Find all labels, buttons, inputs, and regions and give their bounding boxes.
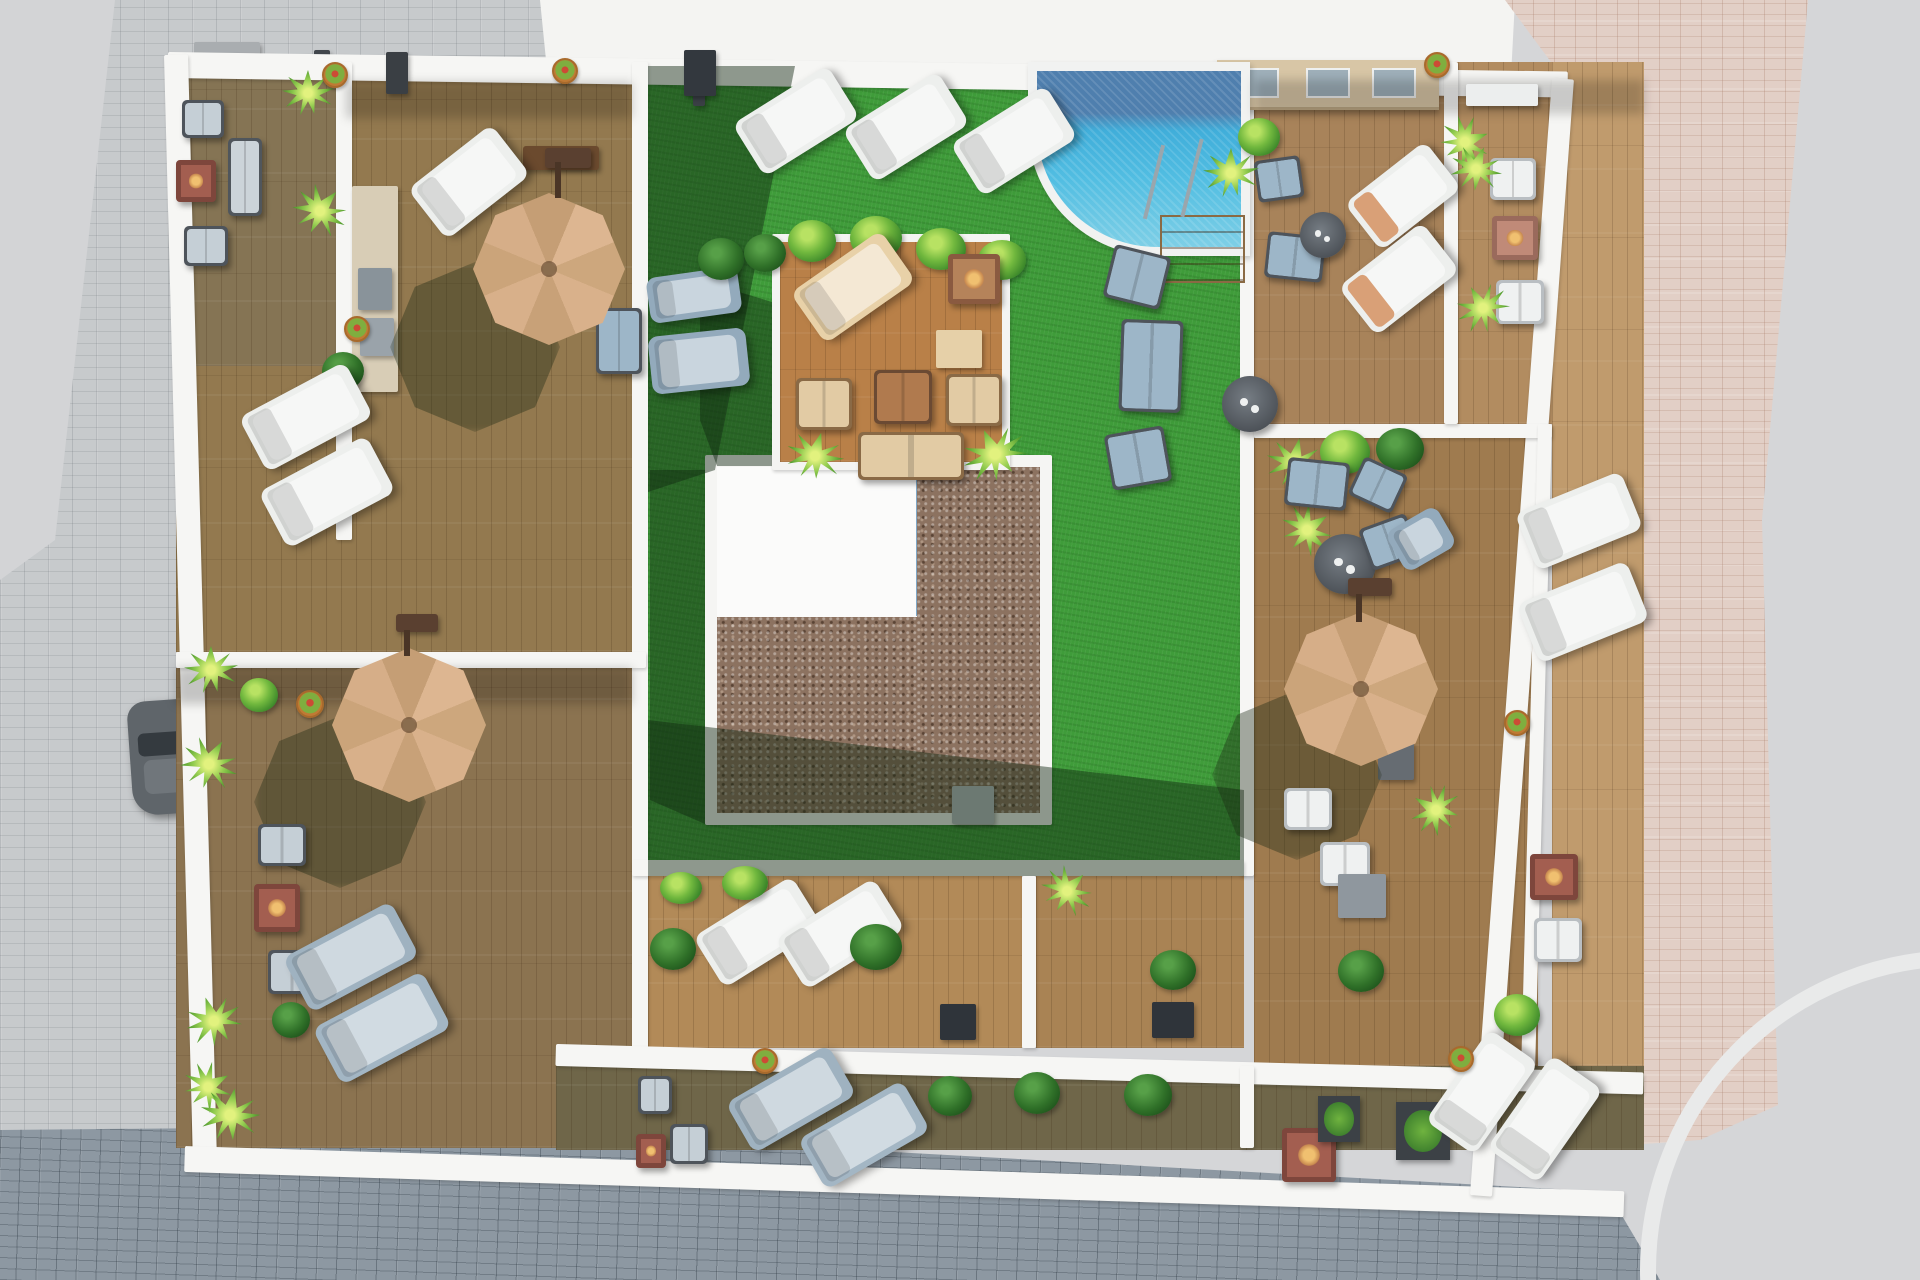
umbrella-arm — [555, 162, 561, 198]
rooftop-courtyard-render — [0, 0, 1920, 1280]
bush — [1014, 1072, 1060, 1114]
bush — [744, 234, 786, 272]
bush — [272, 1002, 310, 1038]
sofa — [228, 138, 262, 216]
counter-white — [1466, 84, 1538, 106]
flower-pot — [1504, 710, 1530, 736]
bush — [1238, 118, 1280, 156]
bush — [788, 220, 836, 262]
flower-pot — [1424, 52, 1450, 78]
fire-table — [1492, 216, 1538, 260]
umbrella-nw — [473, 193, 625, 345]
lounger-blue — [647, 327, 751, 395]
fire-table — [254, 884, 300, 932]
bush — [928, 1076, 972, 1116]
fire-table — [636, 1134, 666, 1168]
umbrella-base — [396, 614, 438, 632]
flower-pot — [322, 62, 348, 88]
storage-box — [1338, 874, 1386, 918]
shadow-wall-ne — [1254, 80, 1644, 114]
armchair-white — [1534, 918, 1582, 962]
cushion — [936, 330, 982, 368]
kitchen-grill — [358, 268, 392, 310]
wall-courtyard-west — [632, 62, 648, 1062]
bush — [850, 924, 902, 970]
armchair — [182, 100, 224, 138]
umbrella-sw — [332, 648, 486, 802]
armchair-blue — [1104, 425, 1173, 491]
fire-table-deck — [948, 254, 1000, 304]
bush — [650, 928, 696, 970]
loveseat-blue — [1118, 319, 1183, 413]
armchair — [670, 1124, 708, 1164]
armchair-white — [1490, 158, 1536, 200]
flower-pot — [344, 316, 370, 342]
umbrella-arm — [1356, 594, 1362, 622]
bush — [660, 872, 702, 904]
house-roof-white — [717, 467, 917, 617]
flower-pot — [296, 690, 324, 718]
pool-steps — [1160, 215, 1245, 283]
bush — [722, 866, 768, 900]
sofa-blue — [1284, 457, 1351, 511]
coffee-table — [874, 370, 932, 424]
armchair-white — [1496, 280, 1544, 324]
planter-box — [1318, 1096, 1360, 1142]
armchair-white — [1284, 788, 1332, 830]
armchair — [638, 1076, 672, 1114]
bush — [1150, 950, 1196, 990]
round-table — [1300, 212, 1346, 258]
wall-se-divider — [1022, 876, 1036, 1048]
sofa-beige — [858, 432, 964, 480]
umbrella-east — [1284, 612, 1438, 766]
ac-unit — [1152, 1002, 1194, 1038]
door-fixture — [684, 50, 716, 96]
wall-bottom-split — [1240, 1066, 1254, 1148]
armchair-beige — [796, 378, 852, 430]
fire-table — [176, 160, 216, 202]
bush — [240, 678, 278, 712]
armchair-beige — [946, 374, 1002, 426]
flower-pot — [752, 1048, 778, 1074]
bush — [1124, 1074, 1172, 1116]
armchair — [184, 226, 228, 266]
door-fixture — [386, 52, 408, 94]
terrace-south-east — [1036, 876, 1244, 1048]
armchair — [1253, 155, 1304, 203]
fire-table — [1530, 854, 1578, 900]
flower-pot — [1448, 1046, 1474, 1072]
armchair — [258, 824, 306, 866]
flower-pot — [552, 58, 578, 84]
terrace-east-strip — [1552, 62, 1644, 1066]
umbrella-base — [1348, 578, 1392, 596]
bush — [698, 238, 744, 280]
bush — [1494, 994, 1540, 1036]
ac-unit — [940, 1004, 976, 1040]
bush — [1338, 950, 1384, 992]
wall-ne-divider — [1444, 62, 1458, 424]
umbrella-arm — [404, 630, 410, 656]
umbrella-base — [545, 148, 591, 168]
round-table — [1222, 376, 1278, 432]
